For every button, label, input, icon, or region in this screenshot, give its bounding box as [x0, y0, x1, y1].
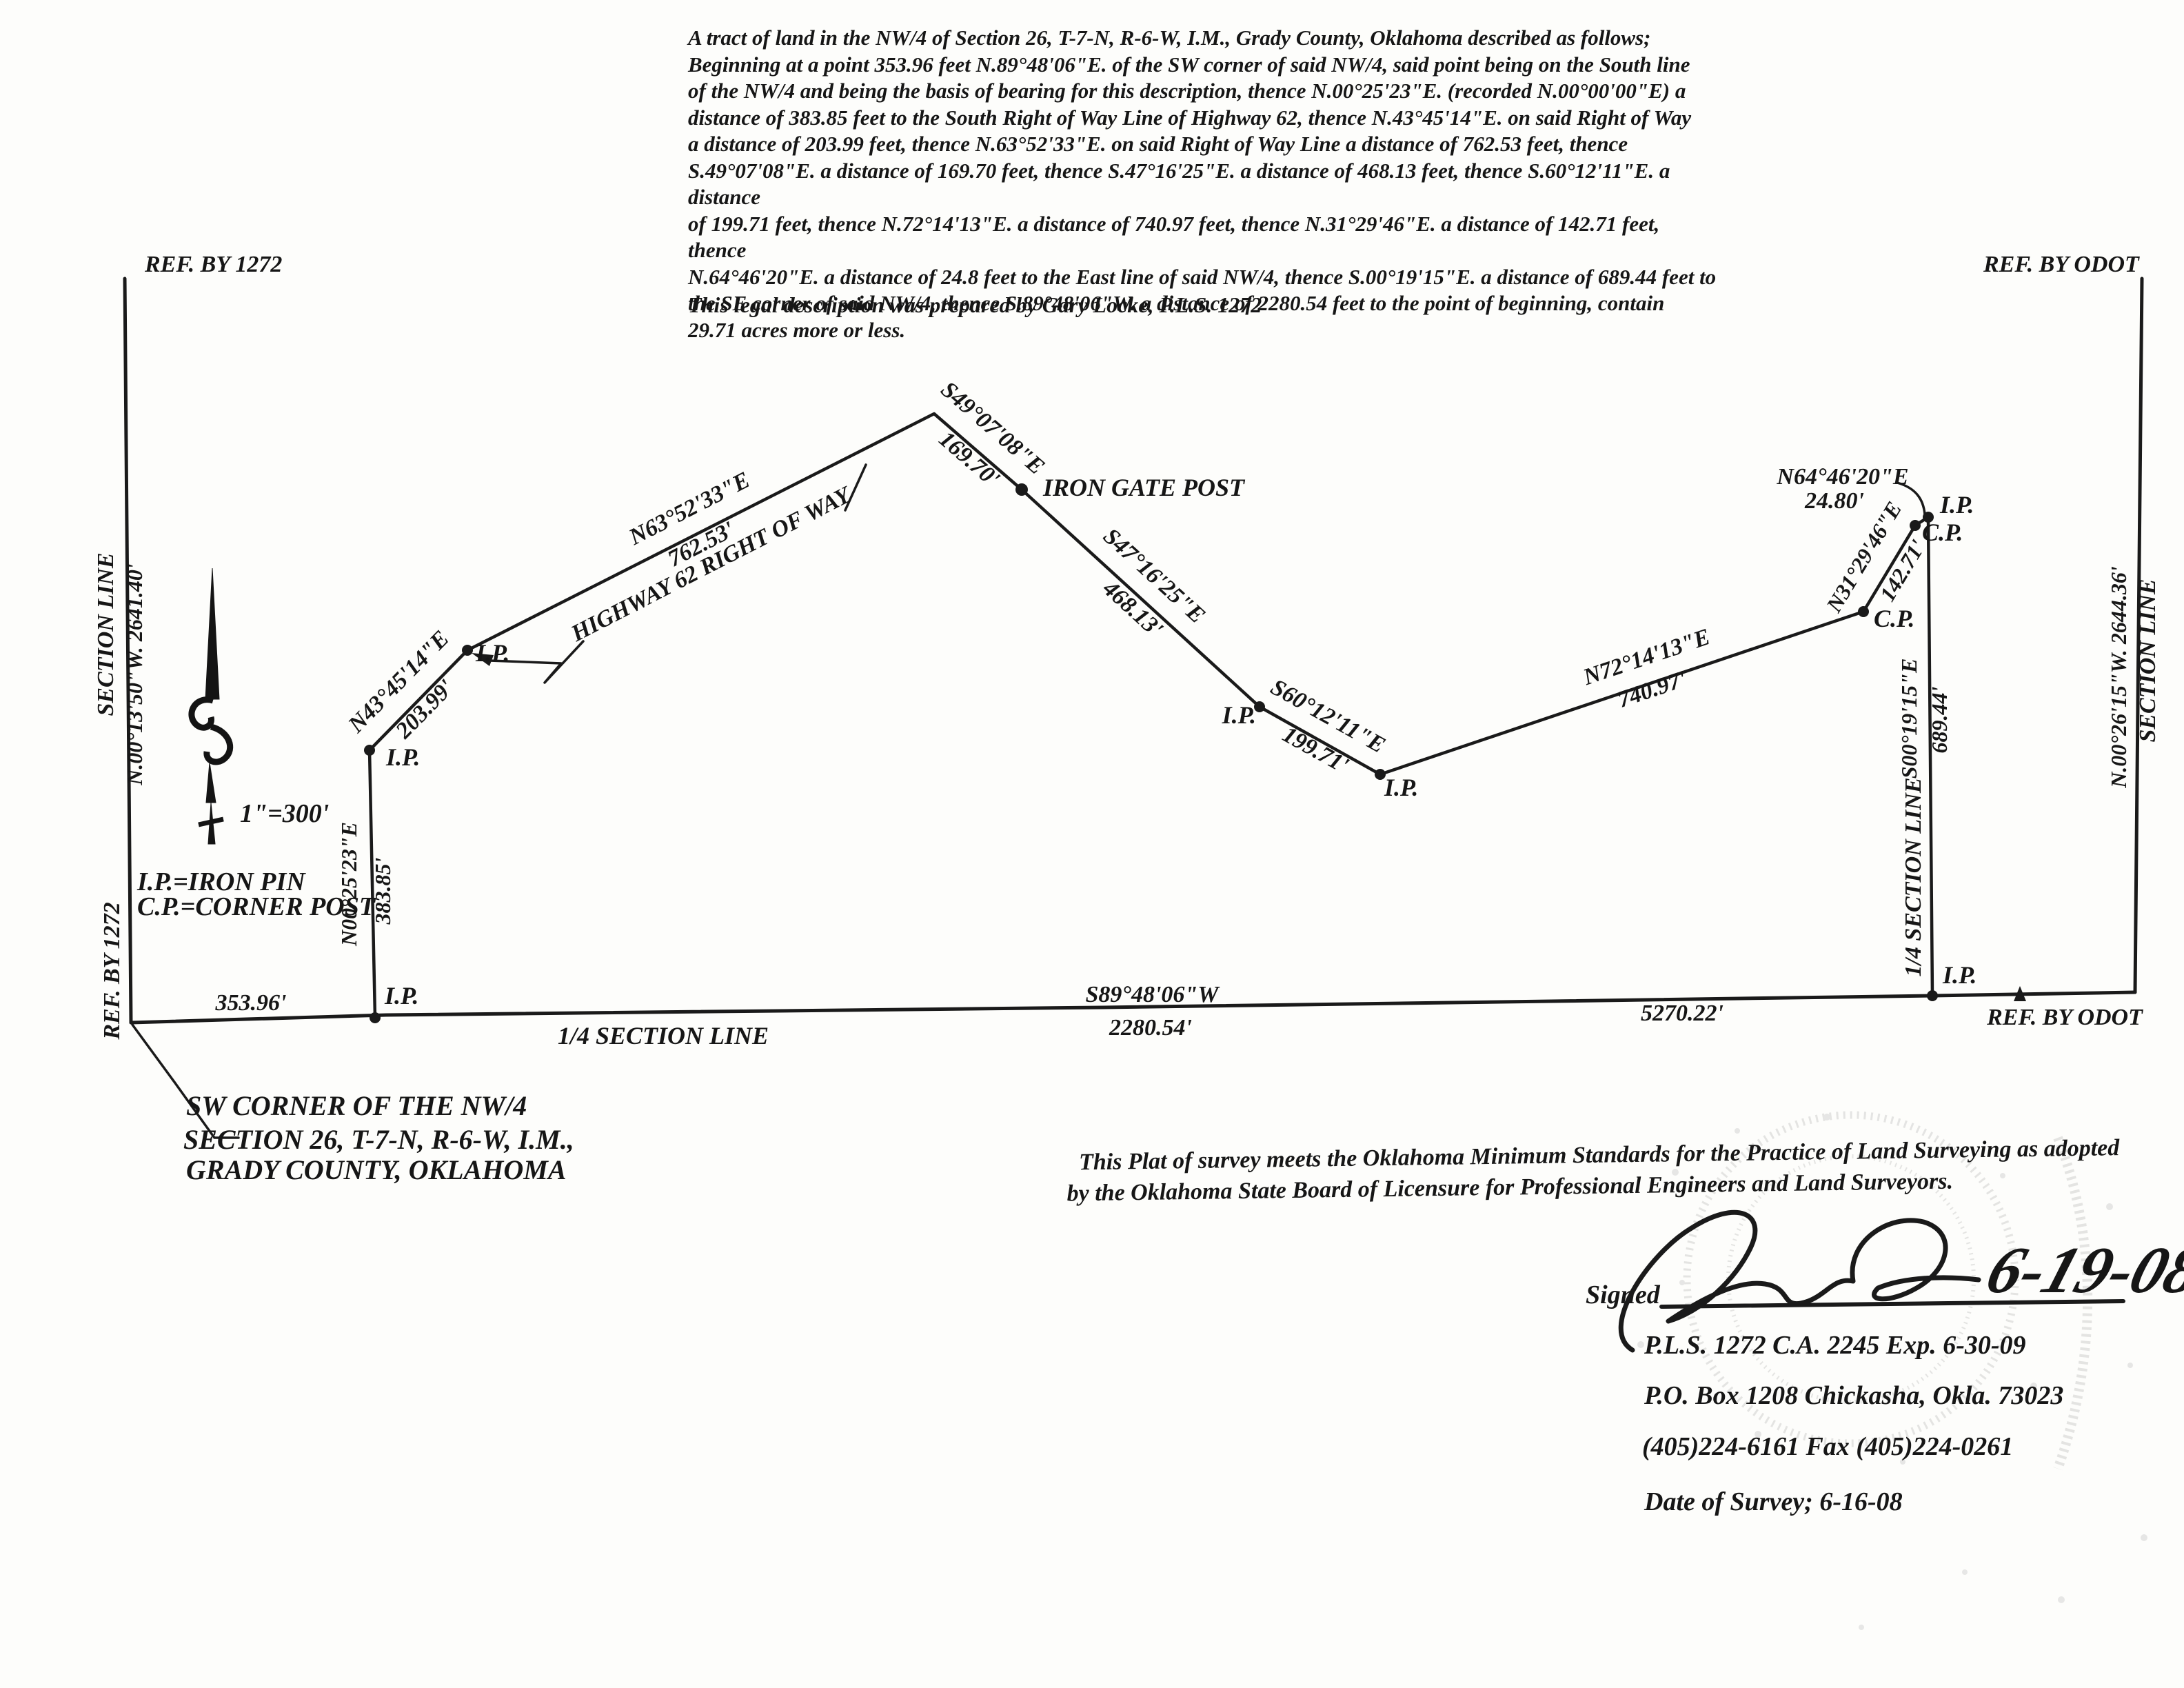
surveyor-phone: (405)224-6161 Fax (405)224-0261 [1642, 1432, 2013, 1461]
leaders [132, 465, 2026, 1138]
certification-line2: by the Oklahoma State Board of Licensure… [1066, 1169, 1953, 1207]
scale-note: 1"=300' [240, 799, 329, 828]
marker-ip-a: I.P. [385, 743, 420, 771]
sw-corner-note-line3: GRADY COUNTY, OKLAHOMA [186, 1154, 567, 1185]
plat-of-survey-page: A tract of land in the NW/4 of Section 2… [0, 0, 2184, 1688]
marker-ip-f: I.P. [1384, 774, 1418, 801]
signed-label: Signed [1586, 1280, 1661, 1309]
pob-offset-distance: 353.96' [215, 990, 287, 1016]
ref-bottom-right: REF. BY ODOT [1986, 1005, 2143, 1030]
tract-boundary [370, 414, 1928, 1018]
east-quarter-section-line [1928, 517, 1932, 996]
west-section-bearing: N.00°13'50"W. 2641.40' [122, 563, 147, 786]
survey-drawing: REF. BY 1272 REF. BY ODOT REF. BY 1272 R… [0, 0, 2184, 1688]
marker-ip-se: I.P. [1942, 961, 1976, 989]
marker-cp-ne: C.P. [1922, 519, 1963, 546]
signature-block: Signed 6-19-08 P.L.S. 1272 C.A. 2245 Exp… [1586, 1212, 2184, 1516]
course-n64-bearing: N64°46'20"E [1776, 464, 1908, 490]
east-quarter-distance: 689.44' [1927, 686, 1952, 753]
course-n64-distance: 24.80' [1804, 488, 1864, 514]
north-arrow-icon [192, 568, 230, 844]
iron-gate-post-label: IRON GATE POST [1042, 474, 1246, 501]
south-line-distance: 2280.54' [1109, 1015, 1192, 1041]
south-quarter-line-label: 1/4 SECTION LINE [558, 1022, 769, 1049]
marker-cp-g: C.P. [1874, 605, 1914, 632]
east-section-bearing: N.00°26'15"W. 2644.36' [2106, 566, 2131, 789]
ref-bottom-left: REF. BY 1272 [99, 902, 125, 1040]
certification: This Plat of survey meets the Oklahoma M… [1066, 1135, 2121, 1206]
surveyor-address: P.O. Box 1208 Chickasha, Okla. 73023 [1644, 1381, 2063, 1410]
certification-line1: This Plat of survey meets the Oklahoma M… [1079, 1135, 2121, 1175]
signature-scrawl [1621, 1212, 1979, 1350]
course-n00-distance: 383.85' [370, 857, 395, 925]
surveyor-license: P.L.S. 1272 C.A. 2245 Exp. 6-30-09 [1644, 1331, 2026, 1360]
marker-ip-b: I.P. [475, 639, 509, 667]
traverse-line [370, 414, 1928, 1018]
marker-ip-ne: I.P. [1939, 491, 1974, 519]
course-n00-bearing: N00°25'23"E [336, 822, 361, 947]
survey-date: Date of Survey; 6-16-08 [1644, 1487, 1903, 1516]
east-quarter-bearing: S00°19'15"E [1897, 659, 1921, 779]
marker-ip-pob: I.P. [384, 982, 418, 1009]
sw-corner-note-line2: SECTION 26, T-7-N, R-6-W, I.M., [183, 1124, 574, 1155]
east-quarter-line-label: 1/4 SECTION LINE [1901, 777, 1926, 976]
south-line-bearing: S89°48'06"W [1085, 982, 1220, 1007]
marker-ip-e: I.P. [1222, 701, 1256, 729]
ref-top-right: REF. BY ODOT [1983, 252, 2140, 277]
west-section-line-label: SECTION LINE [93, 552, 119, 716]
ref-top-left: REF. BY 1272 [144, 252, 282, 277]
south-line-remainder: 5270.22' [1641, 1001, 1723, 1026]
signature-date-handwritten: 6-19-08 [1978, 1234, 2184, 1307]
east-section-line-label: SECTION LINE [2135, 579, 2161, 742]
sw-corner-note-line1: SW CORNER OF THE NW/4 [186, 1090, 527, 1121]
